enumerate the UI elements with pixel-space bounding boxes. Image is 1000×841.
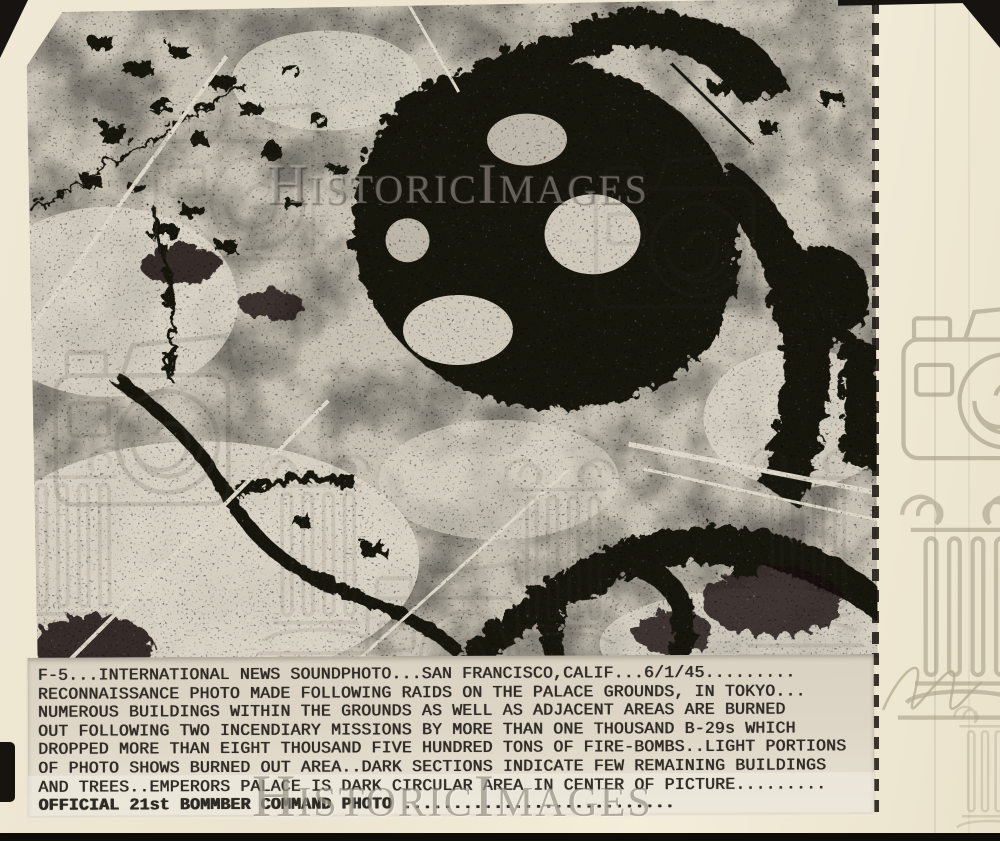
scanner-edge [0,833,1000,841]
aerial-photo [26,0,877,662]
paper-crease [934,0,936,841]
caption-strip: F-5...INTERNATIONAL NEWS SOUNDPHOTO...SA… [28,654,875,816]
scanner-edge [0,742,15,802]
paper-crease [968,0,970,841]
caption-line: OFFICIAL 21st BOMMBER COMMAND PHOTO ....… [38,793,874,815]
scanned-press-photo: { "watermark": { "text": "HistoricImages… [0,0,1000,841]
